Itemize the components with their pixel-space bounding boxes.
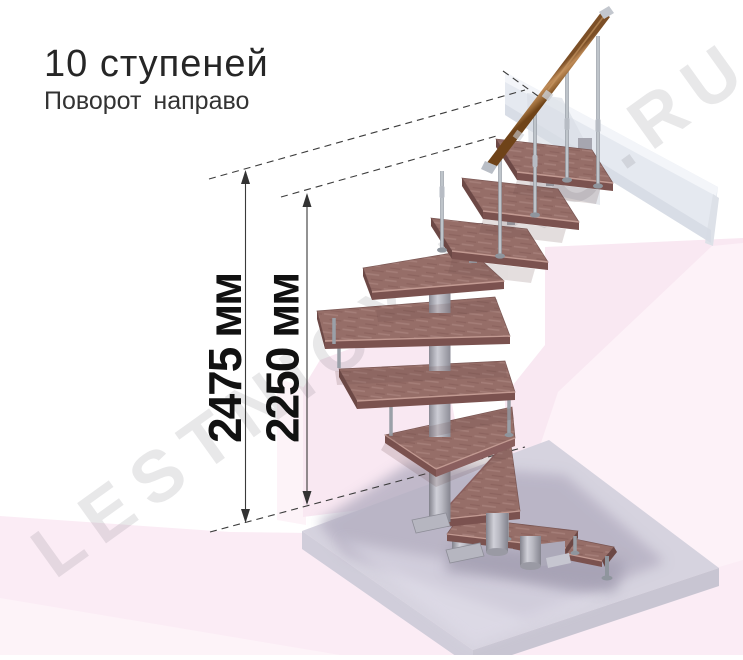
- svg-text:Поворот направо: Поворот направо: [44, 87, 249, 115]
- svg-text:2475 мм: 2475 мм: [199, 274, 251, 443]
- svg-text:2250 мм: 2250 мм: [257, 274, 309, 443]
- svg-text:10 ступеней: 10 ступеней: [44, 43, 269, 85]
